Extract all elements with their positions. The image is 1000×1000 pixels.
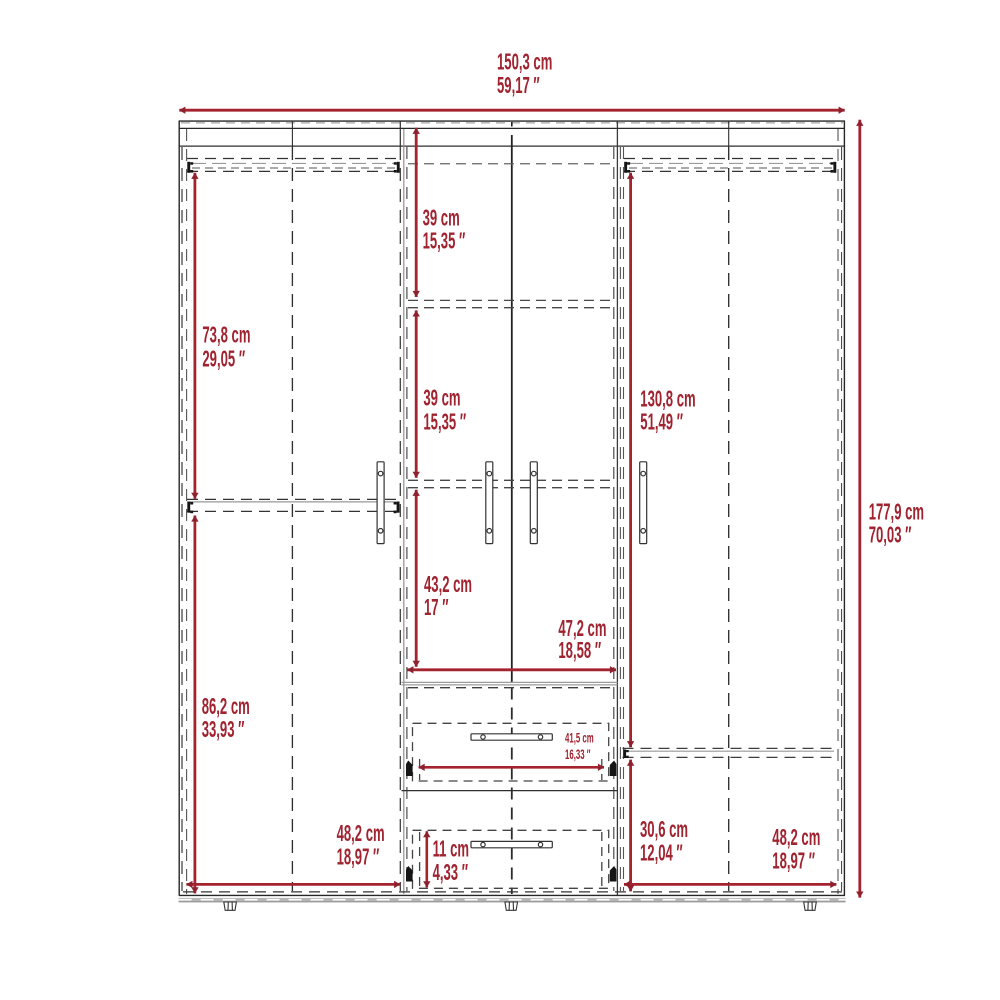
svg-text:48,2 cm: 48,2 cm xyxy=(337,820,385,846)
svg-text:16,33 ″: 16,33 ″ xyxy=(565,748,591,763)
svg-text:150,3 cm: 150,3 cm xyxy=(497,48,552,74)
svg-text:39 cm: 39 cm xyxy=(423,385,460,411)
svg-text:17 ″: 17 ″ xyxy=(424,594,449,620)
svg-text:11 cm: 11 cm xyxy=(433,836,469,862)
svg-text:4,33 ″: 4,33 ″ xyxy=(433,859,468,885)
svg-text:18,58 ″: 18,58 ″ xyxy=(558,637,601,663)
svg-text:12,04 ″: 12,04 ″ xyxy=(640,840,683,866)
svg-text:39 cm: 39 cm xyxy=(423,205,460,231)
svg-text:30,6 cm: 30,6 cm xyxy=(640,816,688,842)
svg-text:41,5 cm: 41,5 cm xyxy=(565,731,594,746)
svg-text:73,8 cm: 73,8 cm xyxy=(202,322,250,348)
svg-text:18,97 ″: 18,97 ″ xyxy=(337,844,380,870)
svg-text:59,17 ″: 59,17 ″ xyxy=(497,72,540,98)
svg-text:130,8 cm: 130,8 cm xyxy=(640,386,695,412)
svg-text:86,2 cm: 86,2 cm xyxy=(202,693,250,719)
svg-text:51,49 ″: 51,49 ″ xyxy=(640,409,683,435)
svg-text:15,35 ″: 15,35 ″ xyxy=(423,228,466,254)
svg-text:18,97 ″: 18,97 ″ xyxy=(772,848,815,874)
svg-text:48,2 cm: 48,2 cm xyxy=(772,824,820,850)
svg-text:177,9 cm: 177,9 cm xyxy=(869,499,924,525)
svg-text:70,03 ″: 70,03 ″ xyxy=(869,522,912,548)
svg-text:33,93 ″: 33,93 ″ xyxy=(202,716,245,742)
svg-text:29,05 ″: 29,05 ″ xyxy=(202,346,245,372)
svg-text:15,35 ″: 15,35 ″ xyxy=(423,409,466,435)
